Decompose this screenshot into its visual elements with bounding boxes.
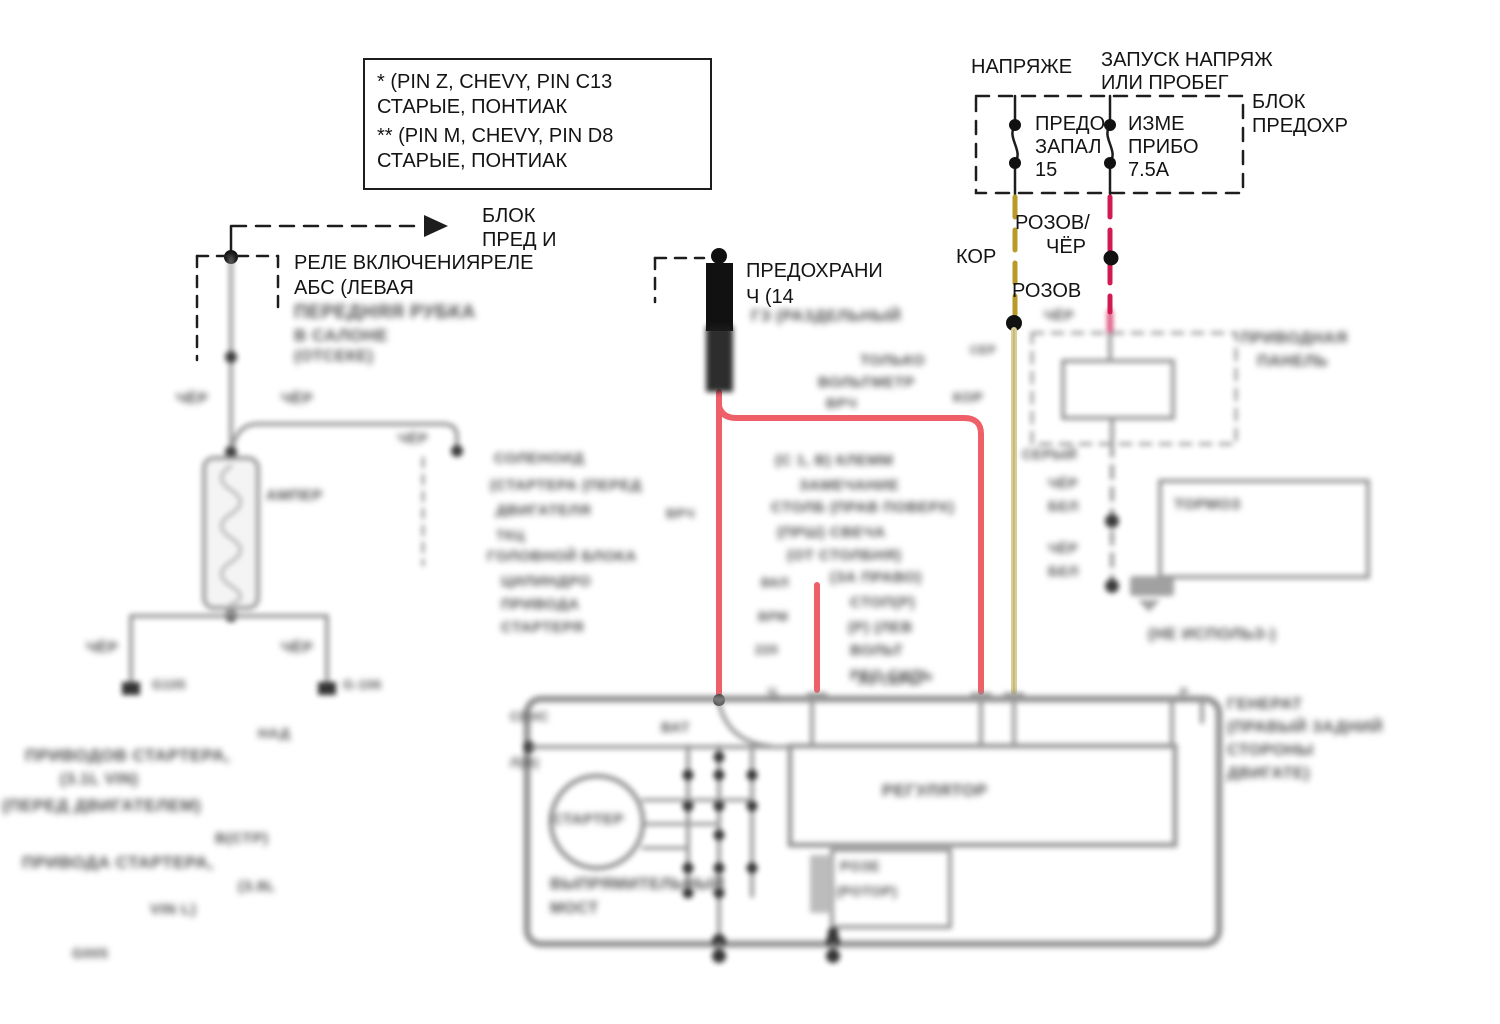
blurred-label: СТАРТЕР xyxy=(552,812,624,828)
blurred-label: СЕНС xyxy=(510,710,549,724)
blurred-label: ЦИЛИНДРО xyxy=(501,574,591,590)
wire-color-pink: РОЗОВ xyxy=(1012,281,1081,302)
blurred-label: ВРЧ xyxy=(666,507,695,521)
run-title-line-2: ИЛИ ПРОБЕГ xyxy=(1101,73,1229,94)
blurred-label: НАД xyxy=(258,726,290,741)
blurred-label: (ЗА ПРАВО) xyxy=(830,570,922,586)
blurred-label: СЕРЫЙ xyxy=(1022,447,1077,462)
voltage-title: НАПРЯЖЕ xyxy=(971,57,1072,78)
blurred-label: ГЕНЕРАТ xyxy=(1227,697,1302,714)
blurred-label: ПРИВОДА СТАРТЕРА, xyxy=(22,854,213,872)
blurred-label: ГЗ (РАЗДЕЛЬНЫЙ xyxy=(751,309,901,326)
blurred-label: Ц xyxy=(768,686,777,699)
fuse-block-label-2: ПРЕДОХР xyxy=(1252,116,1348,137)
blurred-label: АМПЕР xyxy=(266,488,323,504)
blurred-label: СТАРТЕРЯ xyxy=(501,620,584,636)
run-title-line-1: ЗАПУСК НАПРЯЖ xyxy=(1101,50,1273,71)
blurred-label: ТОРМОЗ xyxy=(1174,497,1241,513)
note-line-1: * (PIN Z, CHEVY, PIN C13 xyxy=(377,72,612,93)
blurred-label: СТОП(Р) xyxy=(850,595,915,611)
blurred-label: G005 xyxy=(72,946,108,961)
blurred-label: СТОРОНЫ xyxy=(1227,743,1314,760)
note-line-2: СТАРЫЕ, ПОНТИАК xyxy=(377,97,567,118)
blurred-label: ПЕРЕДНЯЯ РУБКА xyxy=(294,303,476,323)
blurred-label: ГОЛОВНОЙ БЛОКА xyxy=(487,549,637,565)
blurred-label: СЕР xyxy=(970,344,996,357)
blurred-label: ДВИГАТЕ) xyxy=(1227,766,1310,783)
blurred-label: (ПЕРЕД ДВИГАТЕЛЕМ) xyxy=(2,797,201,815)
wiring-diagram: * (PIN Z, CHEVY, PIN C13СТАРЫЕ, ПОНТИАК*… xyxy=(0,0,1500,1024)
blurred-label: 220 xyxy=(755,643,778,657)
relay-label-1: РЕЛЕ ВКЛЮЧЕНИЯРЕЛЕ xyxy=(294,253,533,274)
blurred-label: VIN L) xyxy=(150,902,196,918)
blurred-label: БЕЛ xyxy=(1048,499,1079,514)
blurred-label: G105 xyxy=(152,678,186,692)
blurred-label: СТОЛБ (ПРАВ ПОВЕРХ) xyxy=(771,500,955,516)
fuse1-rating: 15 xyxy=(1035,160,1057,181)
blurred-label: ЧЁР xyxy=(1048,476,1078,491)
wire-color-pink-blk-2: ЧЁР xyxy=(1046,237,1086,258)
blurred-label: (3.8L xyxy=(238,879,276,895)
fuse2-label-1: ИЗМЕ xyxy=(1128,114,1184,135)
blurred-label: В САЛОНЕ xyxy=(294,327,388,345)
blurred-label: (3.1L VIN) xyxy=(60,772,139,789)
blurred-label: ЧЁР xyxy=(398,431,428,446)
blurred-label: G-106 xyxy=(343,678,382,692)
wire-color-pink-blk-1: РОЗОВ/ xyxy=(1015,213,1090,234)
blurred-label: ВКЛ xyxy=(761,576,789,590)
blurred-label: ЧЁР xyxy=(281,391,313,407)
blurred-label: ПРИВОДА xyxy=(501,597,580,613)
blurred-label: (ПРШ) СВЕЧА xyxy=(777,525,886,541)
note-line-3: ** (PIN M, CHEVY, PIN D8 xyxy=(377,126,613,147)
fuse-block-label-1: БЛОК xyxy=(1252,92,1305,113)
blurred-label: БЕЛ xyxy=(1048,564,1079,579)
blurred-label: ТКЦ xyxy=(496,528,525,543)
blurred-label: ЧЁР xyxy=(281,640,313,656)
blurred-label: ВРМ xyxy=(758,610,788,624)
blurred-label: ТОЛЬКО xyxy=(860,353,925,369)
fuse1-label-1: ПРЕДО xyxy=(1035,114,1105,135)
blurred-label: ВОЛЬТ xyxy=(850,643,903,659)
blurred-label: СОЛЕНОИД xyxy=(494,451,584,467)
blurred-label: МОСТ xyxy=(550,901,599,918)
blurred-label: ЧЁР xyxy=(176,391,208,407)
relay-label-2: АБС (ЛЕВАЯ xyxy=(294,278,414,299)
blurred-label: ВОЛЬТМЕТР xyxy=(818,375,915,391)
blurred-label: РОЗЕ xyxy=(840,859,880,874)
blurred-label: ПАНЕЛЬ xyxy=(1257,354,1328,371)
blurred-label: ПРИВОДНАЯ xyxy=(1240,331,1348,348)
blurred-label: ВАТ xyxy=(661,720,690,735)
blurred-label: (НЕ ИСПОЛЬЗ-) xyxy=(1148,627,1276,644)
blurred-label: (С 1, В) КЛЕММ xyxy=(775,453,893,469)
fuse2-rating: 7.5А xyxy=(1128,160,1169,181)
blurred-label: (РОТОР) xyxy=(836,884,897,899)
wire-color-brown: КОР xyxy=(956,247,996,268)
blurred-label: ДВИГАТЕЛЯ xyxy=(496,503,591,519)
blurred-label: КОР xyxy=(953,390,983,405)
blurred-label: В(СТР) xyxy=(215,831,268,847)
note-line-4: СТАРЫЕ, ПОНТИАК xyxy=(377,151,567,172)
blurred-label: (ПРАВЫЙ ЗАДНИЙ xyxy=(1227,720,1383,737)
fuse1-label-2: ЗАПАЛ xyxy=(1035,137,1101,158)
labels-layer: * (PIN Z, CHEVY, PIN C13СТАРЫЕ, ПОНТИАК*… xyxy=(0,0,1500,1024)
blurred-label: ВЫПРЯМИТЕЛЬНЫЙ xyxy=(550,877,724,894)
blurred-label: (ОТ СТОЛБНЯ) xyxy=(787,548,901,564)
blurred-label: ВРЧ xyxy=(826,396,857,411)
blurred-label: (СТАРТЕРА (ПЕРЕД xyxy=(490,478,642,494)
fuse-block-ref-2: ПРЕД И xyxy=(482,230,557,251)
blurred-label: ЧЁР xyxy=(86,640,118,656)
blurred-label: ЗАМЕЧАНИЕ xyxy=(799,478,899,494)
blurred-label: ЧЁР xyxy=(1044,308,1074,323)
blurred-label: ЧЁР xyxy=(1048,541,1078,556)
fusible-link-label-2: Ч (14 xyxy=(746,287,794,308)
blurred-label: ПРИВОДОВ СТАРТЕРА, xyxy=(25,747,230,765)
fuse-block-ref-1: БЛОК xyxy=(482,206,535,227)
blurred-label: РЕГУЛЯТОР xyxy=(882,782,987,800)
blurred-label: ЛЗ СЕРЫ xyxy=(858,674,922,688)
fusible-link-label-1: ПРЕДОХРАНИ xyxy=(746,261,883,282)
blurred-label: Л(В) xyxy=(510,756,539,770)
fuse2-label-2: ПРИБО xyxy=(1128,137,1199,158)
blurred-label: (Р) (ЛЕВ xyxy=(848,620,913,636)
blurred-label: Р xyxy=(1180,687,1189,700)
blurred-label: (ОТСЕКЕ) xyxy=(294,349,374,366)
